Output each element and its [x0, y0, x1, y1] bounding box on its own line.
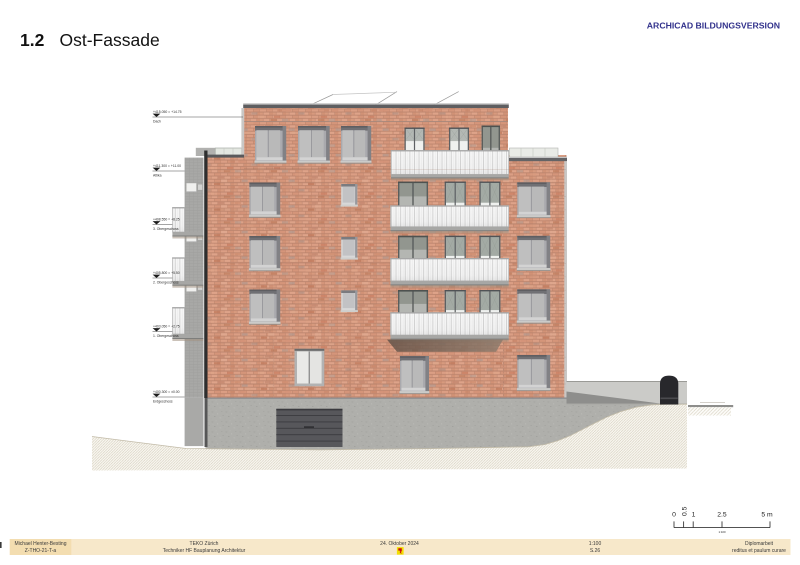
svg-text:1:100: 1:100 — [719, 530, 726, 534]
svg-text:2.5: 2.5 — [717, 512, 727, 519]
svg-text:+405.800 = +5.50: +405.800 = +5.50 — [153, 271, 180, 275]
svg-text:1:100: 1:100 — [589, 541, 602, 547]
svg-text:+403.050 = +2.75: +403.050 = +2.75 — [153, 325, 180, 329]
svg-text:2. Obergeschoss: 2. Obergeschoss — [153, 280, 179, 284]
svg-text:24. Oktober 2024: 24. Oktober 2024 — [380, 541, 419, 547]
svg-text:Attika: Attika — [153, 173, 162, 177]
svg-text:1.2: 1.2 — [20, 30, 45, 50]
svg-text:Diplomarbeit: Diplomarbeit — [745, 541, 774, 547]
svg-text:+415.050 = +14.75: +415.050 = +14.75 — [153, 110, 182, 114]
svg-text:TEKO Zürich: TEKO Zürich — [190, 541, 219, 547]
svg-text:3. Obergeschoss: 3. Obergeschoss — [153, 227, 179, 231]
svg-text:Dach: Dach — [153, 119, 161, 123]
svg-text:Z-THO-21-T-a: Z-THO-21-T-a — [25, 548, 57, 554]
svg-text:1: 1 — [692, 512, 696, 519]
svg-text:Erdgeschoss: Erdgeschoss — [153, 399, 173, 403]
svg-text:reditus et paulum curare: reditus et paulum curare — [732, 548, 786, 554]
svg-text:Techniker HF Bauplanung Archit: Techniker HF Bauplanung Architektur — [163, 548, 246, 554]
svg-text:Ost-Fassade: Ost-Fassade — [60, 30, 160, 50]
svg-text:Michael Henter-Besting: Michael Henter-Besting — [15, 541, 67, 547]
svg-text:0: 0 — [672, 512, 676, 519]
svg-text:+408.550 = +8.25: +408.550 = +8.25 — [153, 218, 180, 222]
svg-text:ARCHICAD BILDUNGSVERSION: ARCHICAD BILDUNGSVERSION — [647, 21, 780, 31]
svg-text:+411.300 = +11.00: +411.300 = +11.00 — [153, 164, 181, 168]
svg-text:+400.300 = ±0.00: +400.300 = ±0.00 — [153, 390, 180, 394]
svg-text:1. Obergeschoss: 1. Obergeschoss — [153, 334, 179, 338]
svg-text:0.5: 0.5 — [682, 506, 689, 516]
svg-text:S.26: S.26 — [590, 548, 601, 554]
svg-text:5 m: 5 m — [761, 512, 773, 519]
